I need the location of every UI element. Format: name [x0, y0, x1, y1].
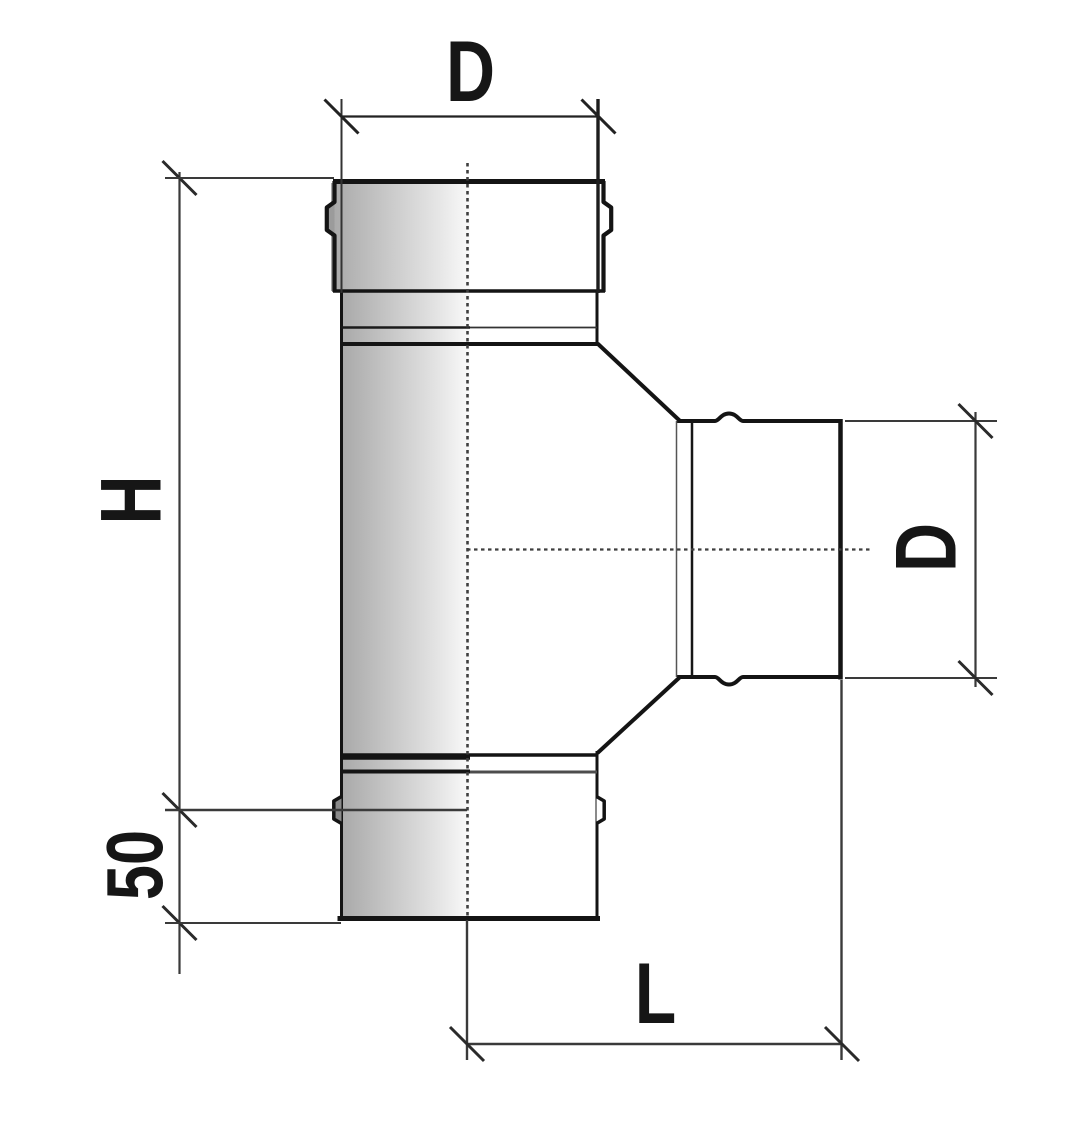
- svg-text:L: L: [635, 946, 677, 1041]
- svg-text:50: 50: [91, 830, 180, 900]
- svg-text:H: H: [84, 475, 179, 524]
- svg-text:D: D: [879, 523, 974, 572]
- svg-text:D: D: [446, 24, 495, 119]
